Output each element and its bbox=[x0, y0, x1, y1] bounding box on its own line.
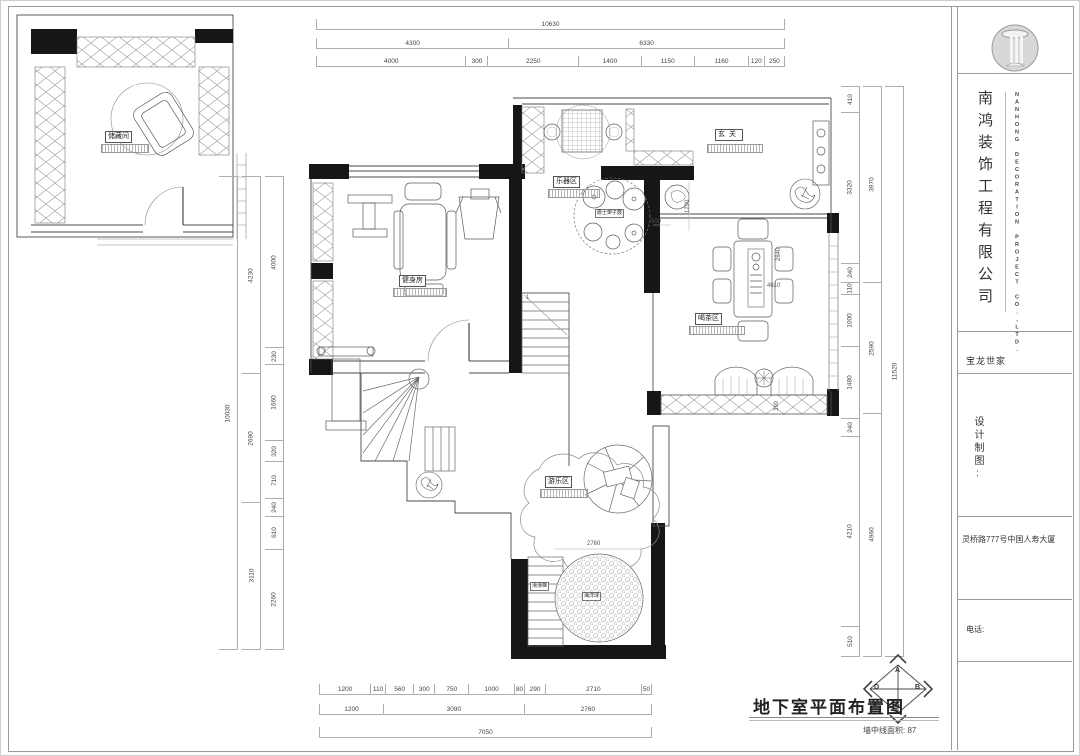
title-underline bbox=[749, 717, 939, 718]
dim-cabinet-width: 500 bbox=[651, 219, 661, 225]
dim-cell: 2710 bbox=[545, 684, 641, 695]
dim-cell: 6330 bbox=[508, 38, 784, 49]
dim-cell: 240 bbox=[841, 263, 860, 281]
dim-ball-pit: 2760 bbox=[587, 541, 600, 547]
divider bbox=[958, 373, 1072, 374]
company-address: 灵桥路777号中国人寿大厦 bbox=[962, 534, 1055, 545]
dim-chain-left-mid: 423026903110 bbox=[242, 176, 261, 650]
tea-zone-furniture bbox=[713, 219, 813, 395]
winder-stairs bbox=[363, 377, 419, 461]
dim-cell: 1000 bbox=[841, 294, 860, 345]
dim-cell: 4000 bbox=[265, 176, 284, 347]
company-name-cn: 南鸿装饰工程有限公司 bbox=[974, 90, 995, 310]
dim-cell: 240 bbox=[265, 498, 284, 516]
dim-cell: 230 bbox=[265, 347, 284, 364]
gym-equipment bbox=[317, 183, 501, 430]
divider bbox=[958, 661, 1072, 662]
dim-cell: 2590 bbox=[863, 282, 882, 413]
compass-letter-c: C bbox=[895, 701, 900, 708]
dim-cell: 2690 bbox=[242, 373, 261, 501]
dim-cell: 1480 bbox=[841, 346, 860, 418]
project-name: 宝龙世家 bbox=[966, 354, 1006, 367]
dim-cell: 10630 bbox=[316, 19, 784, 30]
compass-letter-d: D bbox=[874, 684, 879, 691]
phone-label: 电话: bbox=[966, 624, 984, 635]
dim-cell: 50 bbox=[641, 684, 651, 695]
dim-cell: 1160 bbox=[694, 56, 748, 67]
dim-cell: 300 bbox=[465, 56, 487, 67]
dim-cell: 4960 bbox=[863, 413, 882, 656]
dim-chain-bottom-detail: 1200110560300750100080290271050 bbox=[319, 684, 652, 695]
title-block-border bbox=[951, 6, 952, 750]
teepee-toy bbox=[584, 445, 652, 513]
dim-chain-bottom-overall: 7050 bbox=[319, 727, 652, 738]
label-ball-pit: 海洋球 bbox=[582, 592, 601, 601]
compass-letter-a: A bbox=[895, 667, 900, 674]
dim-chain-right-detail: 4103320240110100014802404210510 bbox=[841, 86, 860, 657]
dim-cell: 240 bbox=[841, 418, 860, 436]
dim-tea-table-length: 4610 bbox=[767, 283, 780, 289]
drawing-sheet: 10630 43006330 4000300225014001150116012… bbox=[0, 0, 1080, 756]
stair-number: 1 bbox=[526, 295, 529, 301]
dim-cell: 410 bbox=[841, 86, 860, 112]
divider bbox=[958, 599, 1072, 600]
tea-table bbox=[734, 241, 772, 317]
plants bbox=[416, 179, 820, 498]
area-note: 墙中线面积: 87 bbox=[863, 725, 916, 736]
room-label-storage: 储藏间 bbox=[105, 131, 132, 143]
storage-room bbox=[17, 15, 246, 245]
dim-tea-cabinet-depth: 390 bbox=[774, 401, 780, 411]
dim-cell: 1200 bbox=[319, 704, 383, 715]
shoe-cabinet bbox=[813, 121, 829, 185]
dim-cell: 2250 bbox=[487, 56, 578, 67]
title-underline-2 bbox=[749, 720, 939, 721]
floor-finish-note bbox=[101, 144, 149, 153]
dim-cell: 610 bbox=[265, 516, 284, 549]
dim-cell: 510 bbox=[841, 626, 860, 656]
dim-chain-right-overall: 11520 bbox=[885, 86, 904, 657]
company-name-en: NANHONG DECORATION PROJECT CO.,LTD. bbox=[1014, 92, 1020, 355]
dim-tea-table-width: 2840 bbox=[776, 248, 782, 261]
dim-chain-left-overall: 10030 bbox=[219, 176, 238, 650]
room-label-gym: 健身房 bbox=[399, 275, 426, 287]
dim-cell: 250 bbox=[764, 56, 784, 67]
dim-chain-bottom-mid: 120030902760 bbox=[319, 704, 652, 715]
dim-cell: 11520 bbox=[885, 86, 904, 656]
label-drum-kit: 爵士架子鼓 bbox=[595, 209, 624, 218]
dim-cell: 2760 bbox=[524, 704, 651, 715]
dim-cell: 1660 bbox=[265, 364, 284, 440]
dim-cell: 3970 bbox=[863, 86, 882, 282]
storage-door-arc bbox=[145, 187, 183, 225]
dim-cell: 290 bbox=[524, 684, 545, 695]
dim-cell: 10030 bbox=[219, 176, 238, 649]
dim-cell: 4210 bbox=[841, 436, 860, 626]
dim-chain-top-mid: 43006330 bbox=[316, 38, 785, 49]
divider bbox=[958, 331, 1072, 332]
floor-finish-note bbox=[548, 189, 600, 198]
floor-finish-note bbox=[689, 326, 745, 335]
floor-plan-drawing bbox=[1, 1, 1080, 756]
divider bbox=[958, 516, 1072, 517]
drafting-label: 设计制图: bbox=[970, 416, 985, 482]
dim-cell: 120 bbox=[748, 56, 764, 67]
floor-finish-note bbox=[540, 489, 588, 498]
dim-cell: 7050 bbox=[319, 727, 651, 738]
dim-chain-top-detail: 40003002250140011501160120250 bbox=[316, 56, 785, 67]
divider bbox=[958, 73, 1072, 74]
dim-cell: 4300 bbox=[316, 38, 508, 49]
dim-cell: 3110 bbox=[242, 502, 261, 649]
dim-cell: 3090 bbox=[383, 704, 524, 715]
storage-shelving-hatch bbox=[35, 37, 229, 223]
dim-cell: 3320 bbox=[841, 112, 860, 264]
dim-cell: 710 bbox=[265, 461, 284, 498]
compass-letter-b: B bbox=[915, 684, 920, 691]
dim-chain-left-detail: 400023016603207102406102260 bbox=[265, 176, 284, 650]
go-board-table bbox=[562, 110, 602, 152]
divider bbox=[1005, 92, 1006, 312]
dim-cell: 2260 bbox=[265, 549, 284, 649]
dim-cell: 110 bbox=[841, 282, 860, 295]
room-label-play: 游乐区 bbox=[545, 476, 572, 488]
dim-cell: 1000 bbox=[468, 684, 513, 695]
foyer-furniture bbox=[813, 121, 829, 185]
dim-cell: 4230 bbox=[242, 176, 261, 373]
dim-cell: 560 bbox=[385, 684, 414, 695]
dim-cell: 300 bbox=[413, 684, 434, 695]
dim-cell: 1400 bbox=[578, 56, 640, 67]
room-label-foyer: 玄关 bbox=[715, 129, 743, 141]
dim-cell: 1150 bbox=[641, 56, 695, 67]
dim-chain-top-overall: 10630 bbox=[316, 19, 785, 30]
dim-cell: 750 bbox=[434, 684, 468, 695]
dim-cell: 110 bbox=[370, 684, 385, 695]
dim-cell: 80 bbox=[514, 684, 525, 695]
room-label-music: 乐器区 bbox=[553, 176, 580, 188]
dim-cell: 320 bbox=[265, 440, 284, 461]
dim-cell: 1200 bbox=[319, 684, 370, 695]
title-block: 南鸿装饰工程有限公司 NANHONG DECORATION PROJECT CO… bbox=[958, 6, 1072, 750]
dim-drum-offset: 1220 bbox=[685, 200, 691, 213]
floor-finish-note bbox=[707, 144, 763, 153]
dim-chain-right-mid: 397025904960 bbox=[863, 86, 882, 657]
label-slide: 滑滑梯 bbox=[530, 582, 549, 591]
room-label-tea: 喝茶区 bbox=[695, 313, 722, 325]
dim-cell: 4000 bbox=[316, 56, 465, 67]
gym-door-arc bbox=[428, 320, 469, 361]
floor-finish-note bbox=[393, 288, 447, 297]
drawing-title: 地下室平面布置图 bbox=[753, 693, 905, 718]
company-logo bbox=[986, 22, 1044, 74]
